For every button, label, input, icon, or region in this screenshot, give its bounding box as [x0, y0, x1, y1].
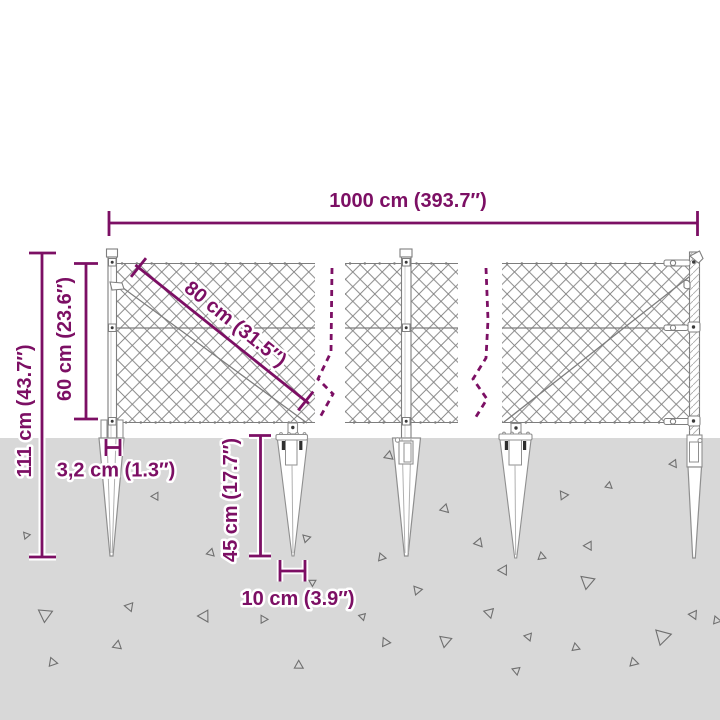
svg-text:3,2 cm (1.3″): 3,2 cm (1.3″)	[57, 460, 176, 482]
svg-text:60 cm (23.6″): 60 cm (23.6″)	[54, 277, 76, 401]
svg-text:45 cm (17.7″): 45 cm (17.7″)	[220, 438, 242, 562]
svg-text:1000 cm (393.7″): 1000 cm (393.7″)	[329, 190, 486, 212]
svg-text:111 cm (43.7″): 111 cm (43.7″)	[14, 344, 36, 477]
svg-text:10 cm (3.9″): 10 cm (3.9″)	[242, 588, 355, 610]
